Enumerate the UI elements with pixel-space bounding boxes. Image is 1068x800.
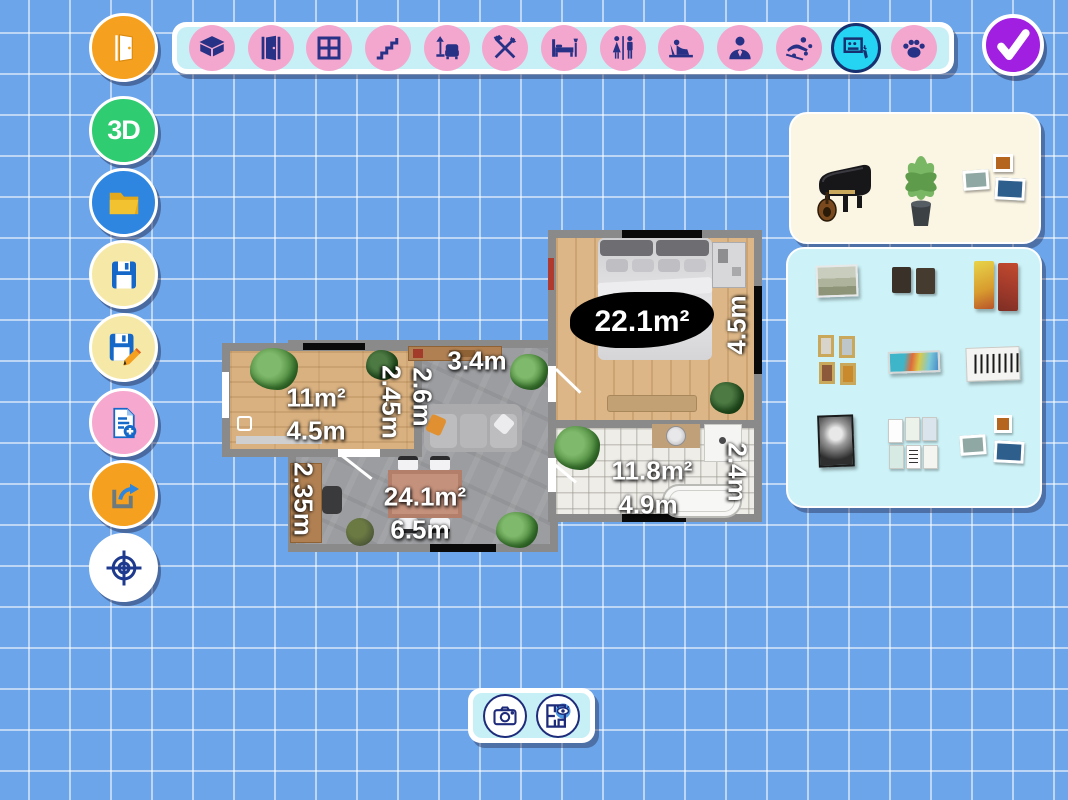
- category-living-furniture-button[interactable]: [424, 25, 470, 71]
- panorama-canvas: [888, 350, 941, 374]
- capture-toolbar: [468, 688, 595, 743]
- 3d-label: 3D: [107, 115, 140, 146]
- sidebar-3d-button[interactable]: 3D: [89, 96, 158, 165]
- dark-panel: [892, 267, 911, 293]
- capture-toolbar-inner: [473, 693, 590, 738]
- white-frame: [905, 417, 920, 441]
- room2-side-label: 2.45m: [376, 365, 407, 439]
- wc-icon: [608, 33, 638, 63]
- category-pets-button[interactable]: [891, 25, 937, 71]
- floppy-icon: [106, 257, 142, 293]
- living-area-label: 24.1m²: [384, 482, 466, 513]
- catalog-item-white-frame-set[interactable]: [888, 417, 938, 473]
- share-icon: [106, 477, 142, 513]
- bedroom-door-gap[interactable]: [548, 366, 556, 402]
- living-plant-round[interactable]: [346, 518, 374, 546]
- bed-pillow: [606, 259, 628, 272]
- category-stairs-button[interactable]: [365, 25, 411, 71]
- door-open-icon: [106, 30, 142, 66]
- document-add-icon: [106, 405, 142, 441]
- catalog-item-picture-set[interactable]: [963, 154, 1029, 212]
- window-icon: [314, 33, 344, 63]
- dark-panel: [916, 268, 935, 294]
- sidebar-save-button[interactable]: [89, 240, 158, 309]
- category-leisure-button[interactable]: [776, 25, 822, 71]
- sofa-cushion: [460, 414, 487, 448]
- sidebar-export-button[interactable]: [89, 460, 158, 529]
- potted-plant-icon: [893, 152, 949, 228]
- keys-canvas: [965, 346, 1020, 382]
- bed-pillow: [658, 259, 680, 272]
- catalog-item-abstract-panel-pair[interactable]: [974, 261, 1020, 313]
- living-wall-b-label: 3.4m: [447, 346, 506, 377]
- design-canvas[interactable]: 22.1m² 4.5m 11m² 4.5m 2.45m 2.6m 3.4m 24…: [0, 0, 1068, 800]
- sink-bowl: [666, 426, 686, 446]
- living-width-label: 6.5m: [390, 515, 449, 546]
- sidebar-save-as-button[interactable]: [89, 313, 158, 382]
- living-plant-bottom[interactable]: [496, 512, 538, 548]
- bedroom-side-window[interactable]: [754, 286, 762, 374]
- camera-icon: [491, 702, 519, 730]
- sideboard-item: [413, 349, 423, 358]
- catalog-item-dark-panel-pair[interactable]: [892, 267, 936, 297]
- room2-width-label: 4.5m: [286, 416, 345, 447]
- cutlery-icon: [490, 33, 520, 63]
- bedroom-bench[interactable]: [607, 395, 697, 412]
- door-icon: [256, 33, 286, 63]
- room2-window[interactable]: [303, 343, 365, 350]
- gold-frame: [839, 336, 855, 358]
- category-windows-button[interactable]: [306, 25, 352, 71]
- white-frame: [888, 419, 903, 443]
- folder-icon: [105, 184, 143, 222]
- painting-canvas: [815, 264, 858, 297]
- category-kids-button[interactable]: [658, 25, 704, 71]
- swimmer-icon: [784, 33, 814, 63]
- bedroom-dresser[interactable]: [712, 242, 746, 288]
- dining-chair[interactable]: [398, 456, 418, 471]
- living-plant-top[interactable]: [510, 354, 548, 390]
- catalog-item-gold-frame-set[interactable]: [818, 335, 858, 387]
- picture-frame: [959, 434, 986, 456]
- picture-hand-icon: [841, 33, 871, 63]
- gold-frame: [819, 362, 835, 384]
- room2-fixture: [237, 416, 252, 431]
- bedroom-side-label: 4.5m: [722, 295, 753, 354]
- category-toolbar-inner: [177, 27, 949, 69]
- catalog-item-bw-portrait[interactable]: [818, 415, 856, 469]
- bathroom-plant[interactable]: [554, 426, 600, 470]
- catalog-item-potted-plant[interactable]: [893, 152, 949, 228]
- bedroom-area-label: 22.1m²: [594, 305, 689, 339]
- category-doors-button[interactable]: [248, 25, 294, 71]
- category-bedroom-button[interactable]: [541, 25, 587, 71]
- catalog-item-landscape-painting[interactable]: [816, 265, 858, 299]
- living-side-label: 2.35m: [288, 462, 319, 536]
- white-frame: [889, 445, 904, 469]
- crosshair-icon: [104, 548, 144, 588]
- catalog-items-panel: [786, 247, 1042, 508]
- bedroom-wall-marker: [548, 258, 554, 290]
- category-toolbar: [172, 22, 954, 74]
- picture-frame: [962, 169, 989, 191]
- floppy-pencil-icon: [105, 329, 143, 367]
- bed-pillow-dark: [656, 240, 709, 256]
- category-office-button[interactable]: [717, 25, 763, 71]
- desk-chair[interactable]: [322, 486, 342, 514]
- sidebar-open-button[interactable]: [89, 168, 158, 237]
- category-kitchen-button[interactable]: [482, 25, 528, 71]
- screenshot-button[interactable]: [483, 694, 527, 738]
- bathroom-side-label: 2.4m: [722, 442, 753, 501]
- catalog-item-grand-piano[interactable]: [805, 154, 877, 226]
- catalog-item-piano-keys-art[interactable]: [966, 347, 1020, 383]
- bed-pillow-dark: [600, 240, 653, 256]
- portrait-canvas: [817, 414, 855, 467]
- category-bathroom-button[interactable]: [600, 25, 646, 71]
- paw-icon: [899, 33, 929, 63]
- armchair-lamp-icon: [432, 33, 462, 63]
- picture-frame: [994, 177, 1025, 201]
- dresser-item: [732, 267, 741, 276]
- room2-area-label: 11m²: [286, 383, 345, 414]
- abstract-panel: [974, 261, 994, 309]
- child-lounge-icon: [666, 33, 696, 63]
- dining-chair[interactable]: [430, 456, 450, 471]
- bed-pillow: [684, 259, 706, 272]
- catalog-item-panorama-picture[interactable]: [888, 351, 940, 377]
- white-frame: [906, 445, 921, 469]
- check-icon: [994, 26, 1032, 64]
- person-icon: [725, 33, 755, 63]
- dresser-item: [718, 249, 728, 263]
- category-decor-button[interactable]: [831, 23, 881, 73]
- bathroom-width-label: 4.9m: [618, 490, 677, 521]
- picture-frame: [993, 154, 1013, 172]
- floorplan-eye-icon: [543, 701, 573, 731]
- category-rooms-button[interactable]: [189, 25, 235, 71]
- stairs-icon: [373, 33, 403, 63]
- sidebar-exit-button[interactable]: [89, 13, 158, 82]
- white-frame: [923, 445, 938, 469]
- bathroom-area-label: 11.8m²: [612, 456, 693, 487]
- bed-icon: [549, 33, 579, 63]
- sidebar-new-plan-button[interactable]: [89, 388, 158, 457]
- bedroom-plant[interactable]: [710, 382, 744, 414]
- plan-preview-button[interactable]: [536, 694, 580, 738]
- picture-frame: [994, 415, 1012, 433]
- living-wall-a-label: 2.6m: [407, 367, 438, 426]
- bathroom-sink-counter[interactable]: [652, 424, 700, 448]
- bed-pillow: [632, 259, 654, 272]
- box-icon: [197, 33, 227, 63]
- confirm-button[interactable]: [982, 14, 1044, 76]
- sidebar-center-view-button[interactable]: [89, 533, 158, 602]
- sofa[interactable]: [424, 404, 522, 452]
- grand-piano-icon: [805, 154, 877, 226]
- picture-frame: [993, 440, 1024, 464]
- abstract-panel: [998, 263, 1018, 311]
- white-frame: [922, 417, 937, 441]
- bedroom-window[interactable]: [622, 230, 702, 238]
- room2-side-window[interactable]: [222, 372, 229, 418]
- gold-frame: [818, 335, 834, 357]
- gold-frame: [840, 363, 856, 385]
- catalog-featured-panel: [789, 112, 1041, 244]
- catalog-item-three-frame-set[interactable]: [960, 415, 1026, 471]
